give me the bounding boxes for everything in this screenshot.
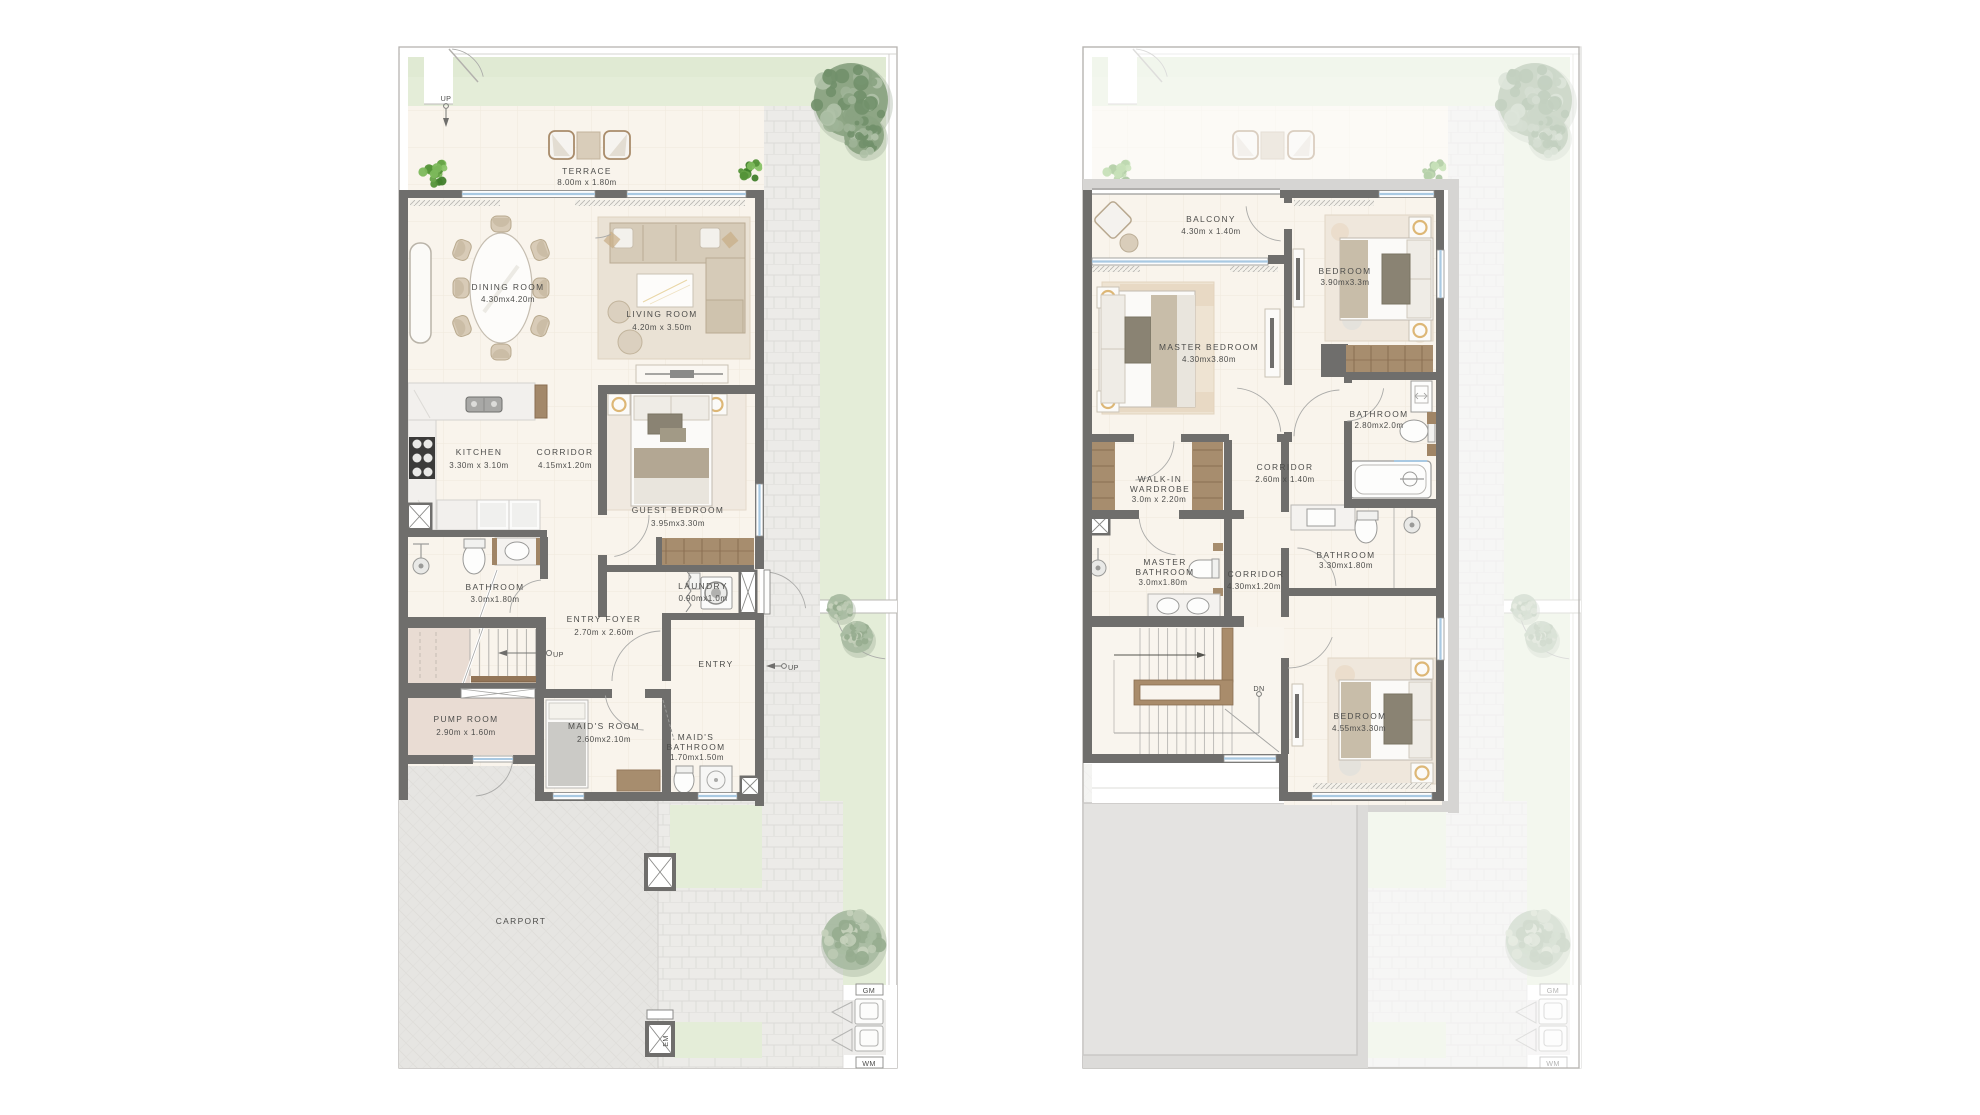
svg-text:ENTRY: ENTRY bbox=[698, 659, 733, 669]
svg-text:MAID'S ROOM: MAID'S ROOM bbox=[568, 721, 640, 731]
svg-text:MASTER BEDROOM: MASTER BEDROOM bbox=[1159, 342, 1259, 352]
svg-text:BATHROOM: BATHROOM bbox=[1136, 567, 1195, 577]
svg-text:2.60mx2.10m: 2.60mx2.10m bbox=[577, 735, 631, 744]
svg-text:CORRIDOR: CORRIDOR bbox=[1228, 569, 1285, 579]
svg-text:4.15mx1.20m: 4.15mx1.20m bbox=[538, 461, 592, 470]
svg-text:4.30mx3.80m: 4.30mx3.80m bbox=[1182, 355, 1236, 364]
svg-text:KITCHEN: KITCHEN bbox=[456, 447, 503, 457]
svg-text:4.20m x 3.50m: 4.20m x 3.50m bbox=[632, 323, 691, 332]
svg-text:3.95mx3.30m: 3.95mx3.30m bbox=[651, 519, 705, 528]
svg-text:3.90mx3.3m: 3.90mx3.3m bbox=[1320, 278, 1369, 287]
svg-text:WARDROBE: WARDROBE bbox=[1130, 484, 1190, 494]
svg-text:DINING ROOM: DINING ROOM bbox=[471, 282, 544, 292]
svg-text:4.30mx4.20m: 4.30mx4.20m bbox=[481, 295, 535, 304]
svg-text:2.70m x 2.60m: 2.70m x 2.60m bbox=[574, 628, 633, 637]
svg-text:3.0mx1.80m: 3.0mx1.80m bbox=[1138, 578, 1187, 587]
svg-text:MASTER: MASTER bbox=[1143, 557, 1186, 567]
svg-text:GM: GM bbox=[863, 986, 875, 995]
svg-text:3.0mx1.80m: 3.0mx1.80m bbox=[470, 595, 519, 604]
svg-text:BATHROOM: BATHROOM bbox=[667, 742, 726, 752]
svg-text:WALK-IN: WALK-IN bbox=[1138, 474, 1182, 484]
svg-text:LIVING ROOM: LIVING ROOM bbox=[626, 309, 697, 319]
svg-text:MAID'S: MAID'S bbox=[678, 732, 715, 742]
svg-text:3.30m x 3.10m: 3.30m x 3.10m bbox=[449, 461, 508, 470]
svg-text:4.55mx3.30m: 4.55mx3.30m bbox=[1332, 724, 1386, 733]
svg-text:WM: WM bbox=[862, 1059, 876, 1068]
svg-text:UP: UP bbox=[788, 663, 799, 672]
svg-text:3.0m x 2.20m: 3.0m x 2.20m bbox=[1132, 495, 1186, 504]
svg-text:LAUNDRY: LAUNDRY bbox=[678, 581, 728, 591]
svg-text:UP: UP bbox=[553, 650, 564, 659]
svg-text:4.30m x 1.40m: 4.30m x 1.40m bbox=[1181, 227, 1240, 236]
svg-text:PUMP ROOM: PUMP ROOM bbox=[433, 714, 498, 724]
svg-text:4.30mx1.20m: 4.30mx1.20m bbox=[1227, 582, 1281, 591]
svg-text:2.60m x 1.40m: 2.60m x 1.40m bbox=[1255, 475, 1314, 484]
svg-text:EM: EM bbox=[661, 1035, 670, 1047]
svg-text:3.30mx1.80m: 3.30mx1.80m bbox=[1319, 561, 1373, 570]
svg-text:2.80mx2.0m: 2.80mx2.0m bbox=[1354, 421, 1403, 430]
svg-text:BATHROOM: BATHROOM bbox=[1350, 409, 1409, 419]
svg-text:BATHROOM: BATHROOM bbox=[1317, 550, 1376, 560]
svg-text:1.70mx1.50m: 1.70mx1.50m bbox=[670, 753, 724, 762]
svg-text:TERRACE: TERRACE bbox=[562, 166, 612, 176]
svg-text:2.90m x 1.60m: 2.90m x 1.60m bbox=[436, 728, 495, 737]
svg-text:BEDROOM: BEDROOM bbox=[1333, 711, 1386, 721]
svg-text:ENTRY FOYER: ENTRY FOYER bbox=[567, 614, 642, 624]
svg-text:UP: UP bbox=[441, 94, 452, 103]
svg-text:CARPORT: CARPORT bbox=[496, 916, 547, 926]
svg-text:CORRIDOR: CORRIDOR bbox=[537, 447, 594, 457]
svg-text:BEDROOM: BEDROOM bbox=[1318, 266, 1371, 276]
svg-text:CORRIDOR: CORRIDOR bbox=[1257, 462, 1314, 472]
svg-text:8.00m x 1.80m: 8.00m x 1.80m bbox=[557, 178, 616, 187]
svg-text:BATHROOM: BATHROOM bbox=[466, 582, 525, 592]
svg-text:0.90mx1.0m: 0.90mx1.0m bbox=[678, 594, 727, 603]
svg-text:BALCONY: BALCONY bbox=[1186, 214, 1236, 224]
svg-text:GUEST BEDROOM: GUEST BEDROOM bbox=[632, 505, 725, 515]
